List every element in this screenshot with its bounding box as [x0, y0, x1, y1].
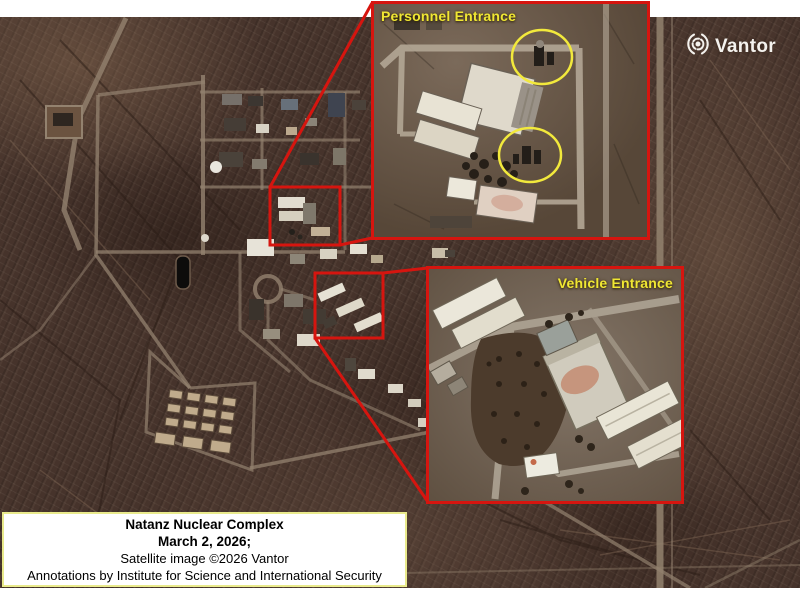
- vantor-aperture-icon: [686, 32, 710, 61]
- outlying-compound: [46, 106, 82, 138]
- screenshot-stage: Personnel Entrance: [0, 0, 800, 594]
- vehicle-area-buildings: [317, 283, 383, 333]
- vantor-logo: Vantor: [686, 32, 776, 61]
- vantor-wordmark: Vantor: [715, 36, 776, 58]
- dark-pond: [176, 256, 190, 289]
- vehicle-inset-imagery: [429, 269, 681, 501]
- personnel-entrance-label: Personnel Entrance: [381, 8, 516, 24]
- barracks-compound: [154, 388, 237, 453]
- personnel-inset-imagery: [374, 4, 647, 237]
- caption-annotator: Annotations by Institute for Science and…: [27, 567, 382, 584]
- caption-credit: Satellite image ©2026 Vantor: [120, 550, 288, 567]
- personnel-area-buildings: [278, 197, 330, 240]
- vehicle-entrance-inset: Vehicle Entrance: [426, 266, 684, 504]
- caption-box: Natanz Nuclear Complex March 2, 2026; Sa…: [2, 512, 407, 587]
- caption-title: Natanz Nuclear Complex: [125, 516, 283, 533]
- caption-date: March 2, 2026;: [158, 533, 251, 550]
- vehicle-entrance-label: Vehicle Entrance: [558, 275, 673, 291]
- personnel-entrance-inset: Personnel Entrance: [371, 1, 650, 240]
